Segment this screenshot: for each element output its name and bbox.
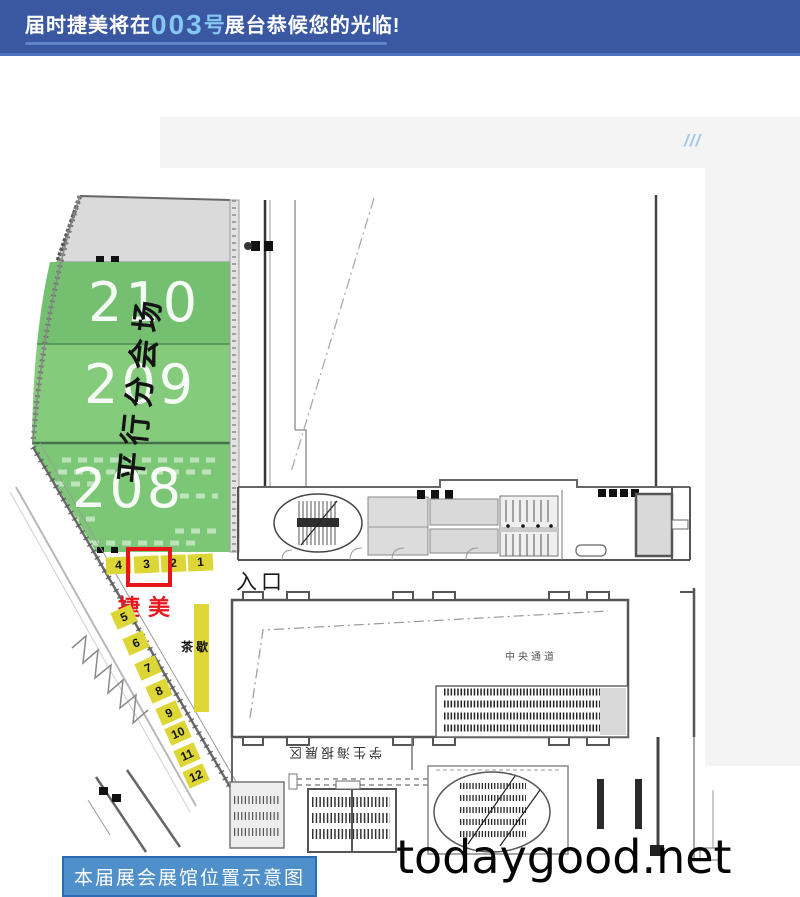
lower-hall	[232, 588, 694, 745]
middle-band	[238, 487, 690, 560]
highlighted-booth-marker	[126, 547, 172, 587]
entrance-label: 入口	[236, 566, 286, 596]
map-caption-button[interactable]: 本届展会展馆位置示意图	[62, 856, 317, 897]
tea-break-label: 茶歇	[181, 638, 211, 655]
watermark-text: todaygood.net	[396, 830, 732, 884]
gray-hall	[57, 196, 230, 262]
tea-break-bar	[194, 604, 209, 712]
central-corridor-label: 中央通道	[505, 648, 557, 663]
front-booth-1[interactable]: 1	[188, 553, 214, 571]
rotated-area-label: 学生海报展区	[286, 744, 382, 763]
central-corridor-walls	[244, 200, 306, 487]
